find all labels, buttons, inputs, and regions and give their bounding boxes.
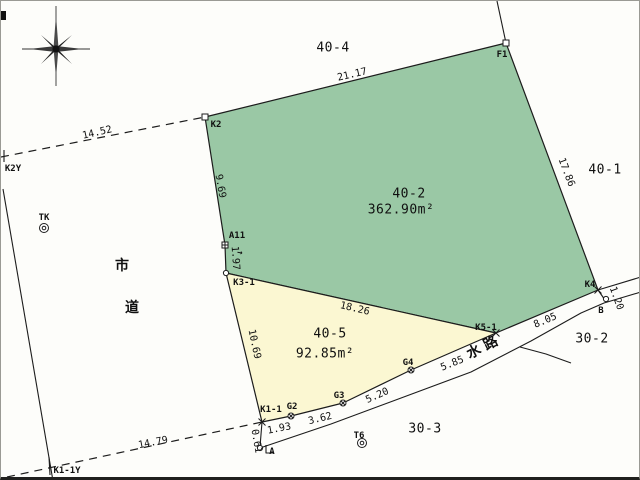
distance-14-79: 14.79: [137, 435, 169, 452]
point-G2-marker: [288, 413, 294, 419]
point-label-f1: F1: [497, 50, 508, 60]
area-label-40-5: 92.85m²: [296, 347, 354, 362]
point-K3-1-marker: [223, 270, 228, 275]
distance-5-85: 5.85: [439, 354, 465, 373]
distance-14-52: 14.52: [81, 124, 113, 141]
point-K2-marker: [202, 114, 208, 120]
point-TK-marker: [40, 224, 49, 233]
point-label-g4: G4: [403, 358, 414, 368]
point-label-tk: TK: [39, 213, 50, 223]
road-name-char-1: 市: [115, 257, 129, 274]
point-B-marker: [603, 296, 608, 301]
point-label-k1-1: K1-1: [260, 405, 282, 415]
point-label-g2: G2: [287, 402, 298, 412]
parcel-label-30-3: 30-3: [408, 422, 441, 437]
point-label-k1-1y: K1-1Y: [53, 466, 81, 476]
distance-1-20: 1.20: [607, 285, 626, 311]
cadastral-map-canvas: 40-421.17F117.8640-114.52K2YK29.69A11→1.…: [1, 1, 640, 480]
point-label-k5-1: K5-1: [475, 323, 497, 333]
point-A11-marker: [222, 242, 228, 248]
compass-rose-icon: [22, 6, 90, 86]
area-label-40-2: 362.90m²: [368, 203, 435, 218]
distance-1-97: 1.97: [229, 246, 242, 271]
point-label-b: B: [598, 306, 604, 316]
scan-artifact-mark: [1, 11, 6, 20]
parcel-label-40-5: 40-5: [313, 327, 346, 342]
survey-map-sheet: 40-421.17F117.8640-114.52K2YK29.69A11→1.…: [0, 0, 640, 480]
point-label-g3: G3: [334, 391, 345, 401]
point-F1-marker: [503, 40, 509, 46]
distance-1-93: 1.93: [266, 421, 292, 436]
parcel-label-40-2: 40-2: [392, 187, 425, 202]
f1-stem-line: [497, 1, 506, 43]
point-label-t6: T6: [354, 431, 365, 441]
point-label-k3-1: K3-1: [233, 278, 255, 288]
point-label-a11: A11: [229, 231, 245, 241]
boundary-branch-30-2-30-3: [520, 347, 571, 363]
parcel-label-40-4: 40-4: [316, 41, 349, 56]
parcel-label-40-1: 40-1: [588, 163, 621, 178]
parcel-label-30-2: 30-2: [575, 332, 608, 347]
point-label-k2: K2: [211, 120, 222, 130]
point-label-k4: K4: [585, 280, 596, 290]
point-label-k2y: K2Y: [5, 164, 22, 174]
point-label-a: A: [269, 447, 275, 457]
road-boundary-south-dashed: [7, 422, 262, 477]
road-name-char-2: 道: [125, 299, 139, 316]
